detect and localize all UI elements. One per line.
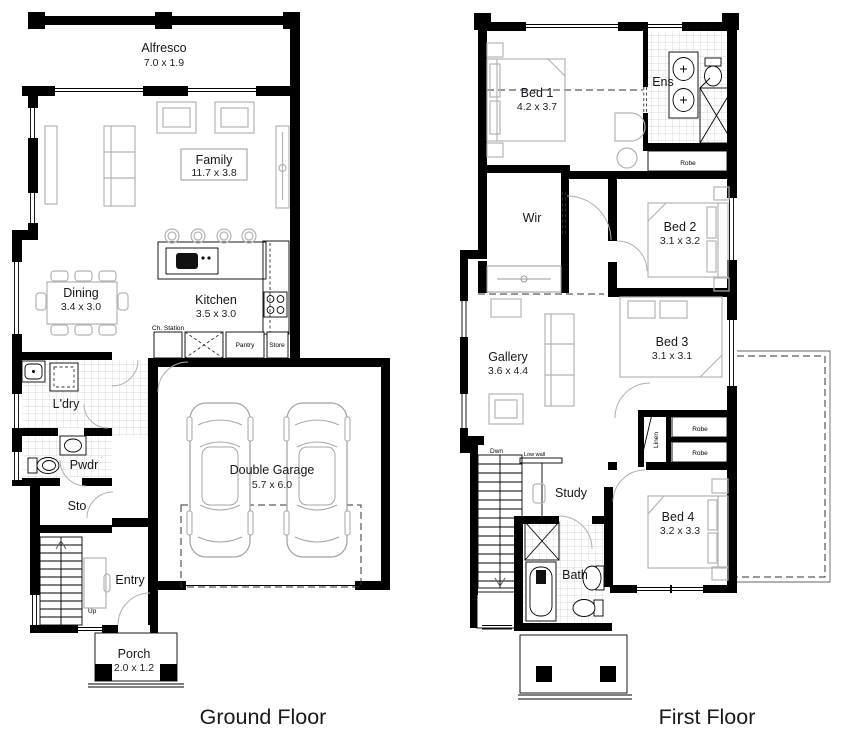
annot-up: Up <box>88 608 97 615</box>
room-label-bed1: Bed 1 <box>521 86 554 100</box>
ground-floor-title: Ground Floor <box>200 705 327 729</box>
room-label-powder: Pwdr <box>70 458 98 472</box>
room-label-garage: Double Garage <box>230 463 315 477</box>
gf-family-furniture <box>45 102 289 208</box>
room-dims-gallery: 3.6 x 4.4 <box>488 365 528 377</box>
room-dims-porch: 2.0 x 1.2 <box>114 662 154 674</box>
ff-bed1-furniture <box>487 43 645 168</box>
room-label-ens: Ens <box>652 75 674 89</box>
floorplan-page: Alfresco 7.0 x 1.9 Family 11.7 x 3.8 Din… <box>0 0 842 738</box>
room-label-bed4: Bed 4 <box>662 510 695 524</box>
ff-balcony <box>518 635 632 699</box>
first-floor-plan: Bed 1 4.2 x 3.7 Ens Robe Wir Bed 2 3.1 x… <box>460 13 830 729</box>
room-label-entry: Entry <box>115 573 145 587</box>
room-label-gallery: Gallery <box>488 350 528 364</box>
room-dims-bed1: 4.2 x 3.7 <box>517 101 557 113</box>
room-label-study: Study <box>555 486 588 500</box>
room-dims-family: 11.7 x 3.8 <box>191 167 236 179</box>
annot-ch-station: Ch. Station <box>152 325 185 332</box>
gf-stairs <box>40 537 82 625</box>
room-label-dining: Dining <box>63 286 98 300</box>
gf-entry-console <box>84 558 110 608</box>
room-dims-alfresco: 7.0 x 1.9 <box>144 57 184 69</box>
first-floor-title: First Floor <box>659 705 756 729</box>
room-label-bath: Bath <box>562 568 588 582</box>
room-dims-bed4: 3.2 x 3.3 <box>660 525 700 537</box>
annot-robe-b: Robe <box>692 450 708 457</box>
room-label-laundry: L'dry <box>53 397 80 411</box>
room-dims-bed3: 3.1 x 3.1 <box>652 350 692 362</box>
ff-roof-below-area <box>737 351 830 582</box>
annot-store: Store <box>269 342 285 349</box>
annot-robe-a: Robe <box>692 426 708 433</box>
room-label-bed2: Bed 2 <box>664 220 697 234</box>
room-label-family: Family <box>196 153 234 167</box>
annot-robe-ens: Robe <box>680 160 696 167</box>
room-label-kitchen: Kitchen <box>195 293 237 307</box>
room-label-porch: Porch <box>118 647 151 661</box>
ground-floor-plan: Alfresco 7.0 x 1.9 Family 11.7 x 3.8 Din… <box>12 12 390 729</box>
room-dims-bed2: 3.1 x 3.2 <box>660 235 700 247</box>
gf-garage <box>181 403 361 587</box>
annot-dwn: Dwn <box>490 448 503 455</box>
floorplan-canvas: Alfresco 7.0 x 1.9 Family 11.7 x 3.8 Din… <box>0 0 842 738</box>
room-dims-garage: 5.7 x 6.0 <box>252 479 292 491</box>
room-dims-dining: 3.4 x 3.0 <box>61 301 101 313</box>
room-label-bed3: Bed 3 <box>656 335 689 349</box>
room-label-sto: Sto <box>68 499 87 513</box>
annot-pantry: Pantry <box>236 342 256 349</box>
room-label-wir: Wir <box>523 211 542 225</box>
annot-linen: Linen <box>653 432 660 448</box>
annot-low-wall: Low wall <box>524 452 545 458</box>
gf-cabinet-row <box>154 332 288 358</box>
room-dims-kitchen: 3.5 x 3.0 <box>196 308 236 320</box>
room-label-alfresco: Alfresco <box>141 41 186 55</box>
